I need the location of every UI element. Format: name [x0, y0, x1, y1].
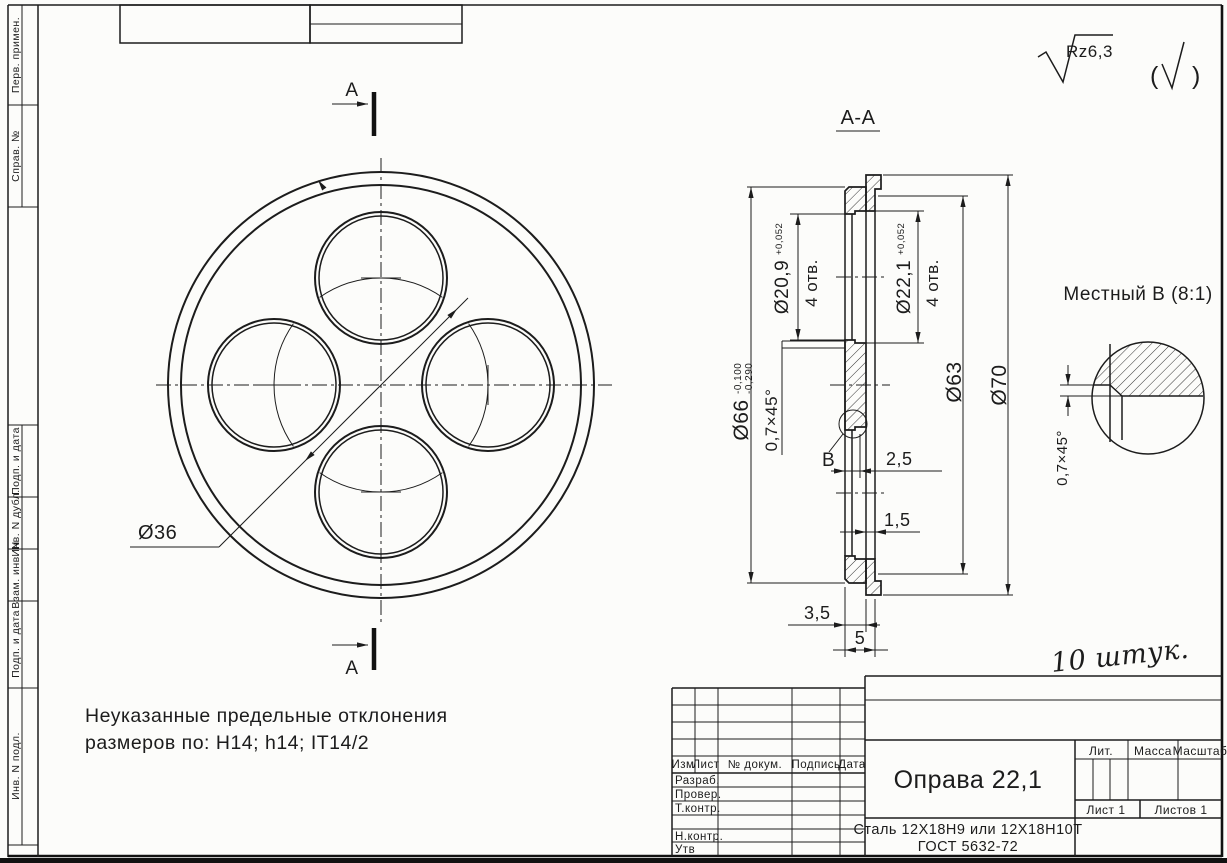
dim-web-value: 2,5 [886, 449, 913, 469]
section-top-block [845, 187, 866, 214]
bolt-circle-dimension: Ø36 [130, 298, 468, 547]
left-stamp-column: Перв. примен. Справ. № Подп. и дата Инв.… [8, 5, 38, 845]
section-label: А-А [836, 107, 880, 131]
dim-d66: Ø66 -0,100 -0,290 [730, 187, 845, 583]
tb-col-date: Дата [838, 759, 866, 771]
dim-d70-value: Ø70 [988, 364, 1011, 405]
section-view: А-А В Ø66 - [730, 107, 1013, 657]
tb-col-sign: Подпись [791, 759, 840, 771]
tb-lit: Лит. [1089, 744, 1113, 758]
dim-web-25: 2,5 [831, 434, 942, 478]
detail-view-title: Местный В (8:1) [1063, 284, 1212, 305]
tb-col-doc: № докум. [728, 759, 783, 771]
roughness-value: Rz6,3 [1066, 42, 1113, 61]
section-bottom-rim [866, 559, 881, 595]
note-line-2: размеров по: H14; h14; IT14/2 [85, 732, 369, 754]
dim-thickness-value: 5 [855, 628, 866, 648]
title-block: Изм Лист № докум. Подпись Дата Разраб. П… [672, 676, 1227, 856]
dim-d209-value: Ø20,9 [772, 260, 793, 314]
section-top-rim [866, 175, 881, 211]
drawing-sheet: Перв. примен. Справ. № Подп. и дата Инв.… [0, 0, 1227, 863]
dim-d221-value: Ø22,1 [894, 260, 915, 314]
surface-roughness-symbol: Rz6,3 ( ) [1038, 35, 1201, 90]
dim-chamfer-section: 0,7×45° [762, 341, 845, 455]
dim-bolt-circle: Ø36 [138, 522, 177, 544]
tb-mass: Масса [1134, 744, 1172, 758]
tb-sheet: Лист 1 [1086, 803, 1125, 817]
stamp-cell-inv-podl: Инв. N подл. [10, 732, 22, 800]
tb-scale: Масштаб [1173, 744, 1227, 758]
dim-d209-tol: +0,052 [774, 223, 785, 255]
dim-d63-value: Ø63 [943, 361, 966, 402]
section-title-text: А-А [841, 107, 876, 129]
drawing-canvas: Перв. примен. Справ. № Подп. и дата Инв.… [0, 0, 1227, 863]
cut-label-top: А [345, 80, 358, 101]
stamp-cell-podp-data-2: Подп. и дата [10, 610, 22, 678]
section-cut-marks: А А [332, 80, 374, 679]
tb-row-razrab: Разраб. [675, 775, 720, 787]
dim-d66-tol-lower: -0,290 [744, 363, 755, 394]
tb-part-name: Оправа 22,1 [894, 766, 1043, 794]
tb-row-prover: Провер. [675, 789, 722, 801]
tb-col-list: Лист [693, 759, 720, 771]
dim-chamfer-text: 0,7×45° [762, 389, 781, 452]
tb-row-tkontr: Т.контр. [675, 803, 721, 815]
paren-close: ) [1192, 62, 1201, 90]
corner-stamp-boxes [120, 5, 462, 43]
paren-open: ( [1150, 62, 1159, 90]
dim-d221-note: 4 отв. [923, 259, 942, 307]
main-view: Ø36 А А [130, 80, 612, 679]
tb-sheets: Листов 1 [1155, 803, 1208, 817]
tb-col-izm: Изм [672, 759, 695, 771]
tb-material-1: Сталь 12Х18Н9 или 12Х18Н10Т [853, 822, 1082, 838]
general-note: Неуказанные предельные отклонения размер… [85, 705, 448, 754]
dim-thickness-5: 5 [833, 599, 888, 657]
detail-ref-label: В [822, 450, 835, 471]
dim-rim-value: 1,5 [884, 510, 911, 530]
dim-step-value: 3,5 [804, 603, 831, 623]
dim-d209: Ø20,9 +0,052 4 отв. [772, 214, 845, 340]
tb-row-utv: Утв [675, 844, 695, 856]
stamp-cell-perv-primen: Перв. примен. [10, 17, 22, 93]
detail-view: Местный В (8:1) 0,7×45° [1054, 284, 1213, 486]
section-bottom-block [845, 556, 866, 583]
note-line-1: Неуказанные предельные отклонения [85, 705, 448, 727]
stamp-cell-sprav-no: Справ. № [10, 130, 22, 182]
cut-label-bottom: А [345, 658, 358, 679]
dim-d66-tol-upper: -0,100 [733, 363, 744, 394]
tb-material-2: ГОСТ 5632-72 [918, 839, 1018, 855]
dim-d66-value: Ø66 [730, 399, 753, 440]
stamp-cell-vzam-inv: Взам. инв. N [10, 541, 22, 608]
dim-d221-tol: +0,052 [896, 223, 907, 255]
dim-chamfer-detail-text: 0,7×45° [1054, 430, 1071, 486]
dim-d209-note: 4 отв. [802, 259, 821, 307]
stamp-cell-podp-data-1: Подп. и дата [10, 427, 22, 495]
handwritten-quantity: 10 штук. [1049, 634, 1190, 679]
roughness-others-icon: ( ) [1150, 42, 1201, 90]
dim-step-35: 3,5 [788, 587, 880, 657]
tb-row-nkontr: Н.контр. [675, 831, 723, 843]
